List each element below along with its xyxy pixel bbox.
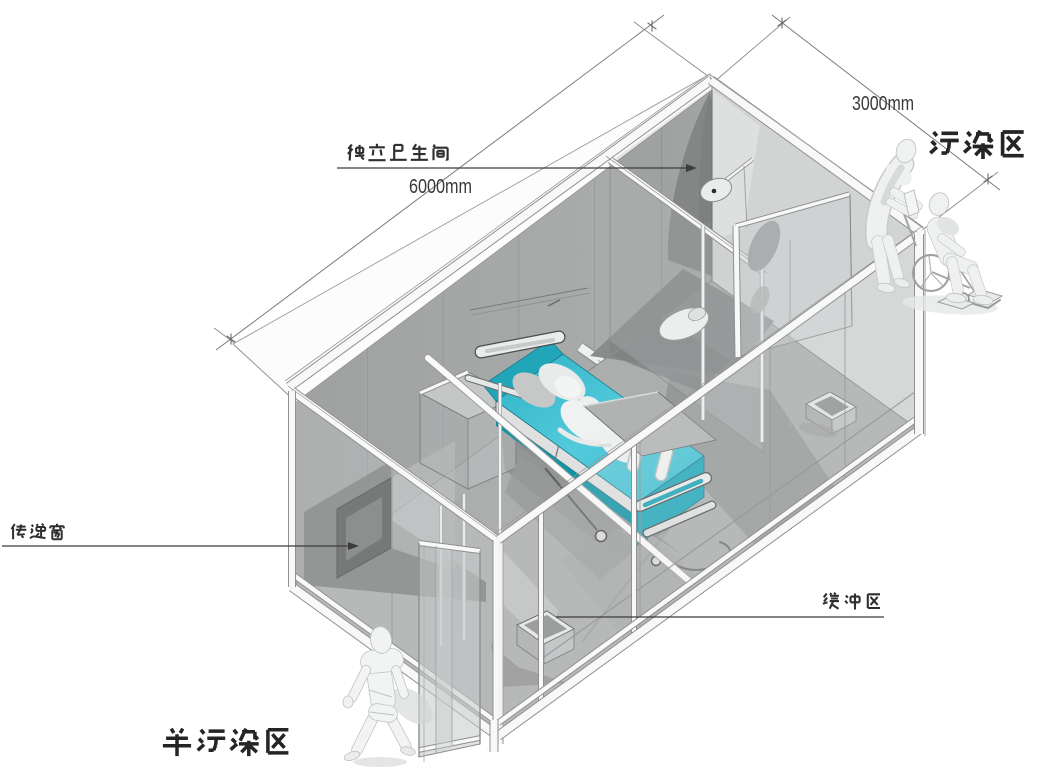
svg-text:6000mm: 6000mm bbox=[409, 176, 472, 198]
svg-text:3000mm: 3000mm bbox=[852, 93, 914, 115]
